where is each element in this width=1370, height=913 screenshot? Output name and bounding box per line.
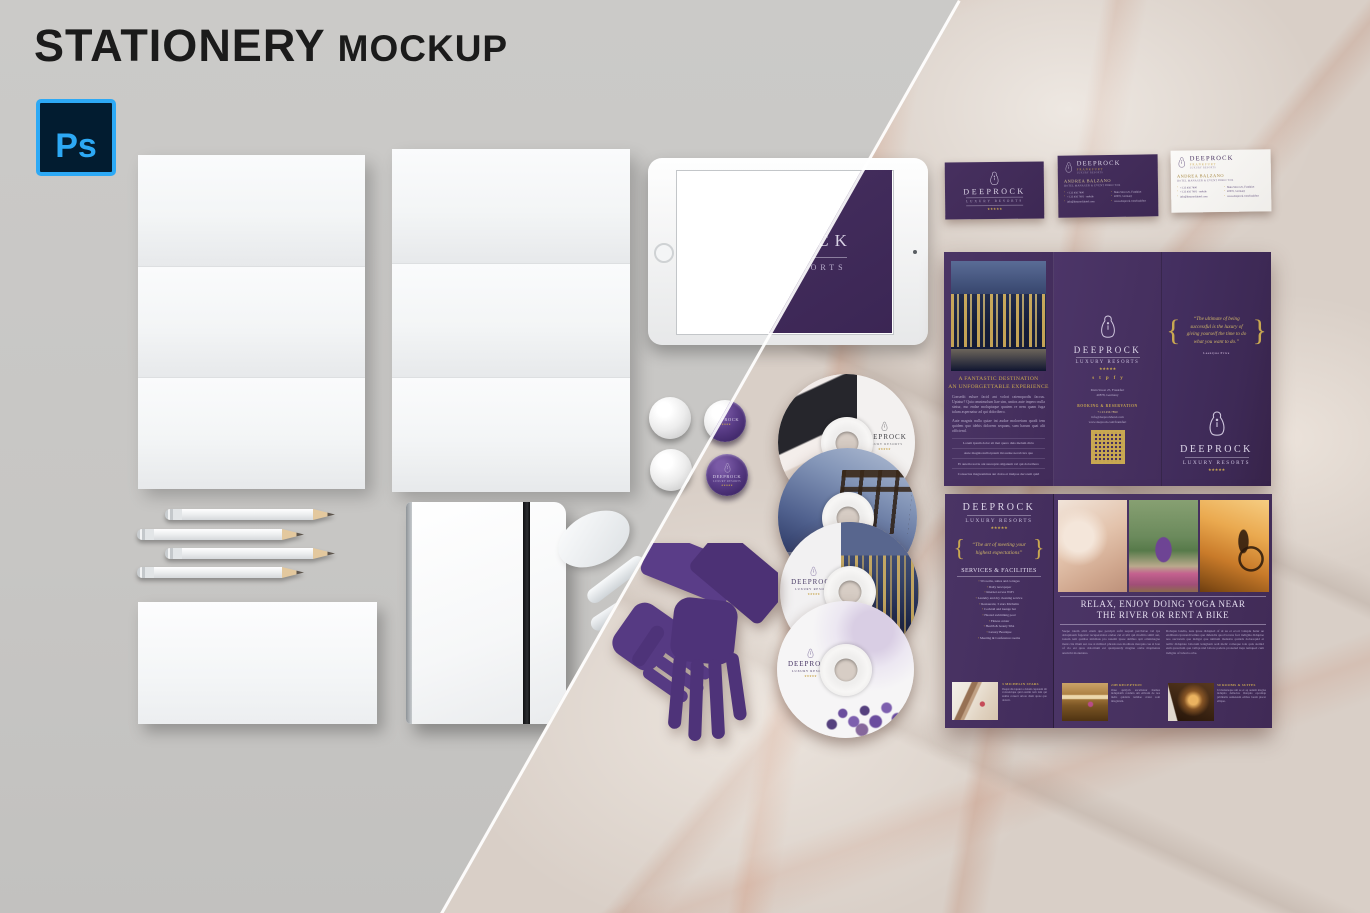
pencil-eraser bbox=[165, 509, 182, 520]
page-title: STATIONERY MOCKUP bbox=[34, 20, 508, 72]
pin-stars: ★★★★★ bbox=[721, 484, 733, 487]
food-photo bbox=[952, 682, 998, 720]
stationery-mockup-poster: STATIONERY MOCKUP Ps bbox=[0, 0, 1370, 913]
brand-logo-icon bbox=[806, 648, 815, 659]
info-bullet: Consectus magnonimus aut dolos et inulpa… bbox=[952, 468, 1045, 478]
brace-close: } bbox=[1033, 537, 1045, 561]
card-contact-line: info@deeprockhotel.com bbox=[1177, 195, 1218, 199]
brochure-info-panel: A FANTASTIC DESTINATION AN UNFORGETTABLE… bbox=[944, 252, 1053, 486]
headline-line1: RELAX, ENJOY DOING YOGA NEAR bbox=[1060, 599, 1266, 610]
pencil bbox=[165, 548, 335, 559]
services-list: 50 rooms, suites and cottages Daily news… bbox=[976, 579, 1023, 641]
pencil-eraser bbox=[165, 548, 182, 559]
booking-label: BOOKING & RESERVATION bbox=[1077, 404, 1137, 408]
pin-brand-name: DEEPROCK bbox=[713, 474, 742, 479]
brace-close: } bbox=[1253, 316, 1267, 346]
bike-sunset-photo bbox=[1200, 500, 1269, 592]
divider bbox=[1185, 457, 1249, 458]
brace-open: { bbox=[953, 537, 965, 561]
pencil bbox=[137, 567, 304, 578]
card-contact-line: +1 23 456 7891 · mobile bbox=[1064, 195, 1105, 199]
photoshop-icon: Ps bbox=[36, 99, 116, 176]
brand-logo-icon bbox=[1064, 161, 1074, 173]
card-person-role: HOTEL MANAGER & EVENT DIRECTOR bbox=[1064, 183, 1152, 187]
brand-tagline: LUXURY RESORTS bbox=[1183, 460, 1250, 466]
headline-line2: THE RIVER OR RENT A BIKE bbox=[1060, 610, 1266, 621]
brand-logo-icon bbox=[880, 421, 889, 432]
blank-letterhead-sheet-1 bbox=[138, 155, 365, 487]
service-item: Laundry and dry cleaning service bbox=[976, 596, 1023, 602]
branded-pin-badge: DEEPROCK LUXURY RESORTS ★★★★★ bbox=[706, 454, 748, 496]
feature-text-column: 3 MICHELIN STARS Ibaqui dis iquunt a dol… bbox=[1002, 682, 1047, 720]
card-contact-left: +1 23 456 7890 +1 23 456 7891 · mobile i… bbox=[1177, 186, 1218, 199]
trifold-brochure-inner: DEEPROCK LUXURY RESORTS ★★★★★ { “The art… bbox=[945, 494, 1272, 728]
card-contact-left: +1 23 456 7890 +1 23 456 7891 · mobile i… bbox=[1064, 191, 1105, 204]
info-heading: A FANTASTIC DESTINATION AN UNFORGETTABLE… bbox=[944, 376, 1053, 391]
brochure-cover-panel: { “The ultimate of being successful is t… bbox=[1162, 252, 1271, 486]
brand-tagline: LUXURY RESORTS bbox=[1076, 360, 1140, 365]
reception-feature: 24H RECEPTION Onse quidych excelistaur t… bbox=[1062, 683, 1160, 721]
card-sub-label: LUXURY RESORTS bbox=[1190, 166, 1234, 170]
cd-lavender-design: DEEPROCK LUXURY RESORTS ★★★★★ bbox=[777, 601, 914, 738]
spa-massage-photo bbox=[1058, 500, 1127, 592]
body-column: Robapte landia, nate ipsae didupied of u… bbox=[1166, 629, 1264, 673]
tablet-home-button bbox=[654, 243, 674, 263]
pencil bbox=[165, 509, 335, 520]
card-contact-line: +1 23 456 7890 bbox=[1064, 191, 1105, 195]
brace-open: { bbox=[1166, 316, 1180, 346]
fold-panel bbox=[392, 149, 630, 263]
cover-brand-block: DEEPROCK LUXURY RESORTS ★★★★★ bbox=[1162, 409, 1271, 472]
body-column: Saepe ratem alici etum que percipit suft… bbox=[1062, 629, 1160, 673]
fold-panel bbox=[138, 377, 365, 489]
notebook-spine bbox=[406, 502, 412, 724]
spread-headline: RELAX, ENJOY DOING YOGA NEAR THE RIVER O… bbox=[1060, 596, 1266, 625]
info-bullet: Et autem reat iu ant susceptio silganum … bbox=[952, 458, 1045, 468]
pencil-tip bbox=[282, 529, 304, 540]
info-bullet: Aute magnis nulla ipsum mi audae necab i… bbox=[952, 448, 1045, 458]
divider bbox=[957, 576, 1041, 577]
pencil bbox=[137, 529, 304, 540]
email-address: info@deeprockhotel.com bbox=[1089, 415, 1127, 420]
feature-text: Ibaqui dis iquunt a dolum cuptatem dit v… bbox=[1002, 688, 1047, 703]
fold-panel bbox=[392, 263, 630, 378]
card-header-text: DEEPROCK FRANKFURT LUXURY RESORTS bbox=[1077, 160, 1121, 175]
brand-logo-icon bbox=[1205, 409, 1229, 439]
social-icons-row: s t p f y bbox=[1092, 376, 1123, 381]
facebook-icon: f bbox=[1114, 376, 1116, 381]
yoga-photo bbox=[1129, 500, 1198, 592]
twitter-icon: t bbox=[1099, 376, 1101, 381]
feature-text: Onse quidych excelistaur themus indupita… bbox=[1111, 689, 1160, 704]
pencil-eraser bbox=[137, 529, 154, 540]
card-contact-line: Main Street 25, Frankfurt bbox=[1111, 190, 1152, 194]
title-main: STATIONERY bbox=[34, 20, 326, 72]
brand-name: DEEPROCK bbox=[1074, 345, 1142, 355]
photo-towers bbox=[951, 294, 1046, 347]
cd-hole bbox=[838, 580, 861, 603]
card-header-text: DEEPROCK FRANKFURT LUXURY RESORTS bbox=[1190, 155, 1234, 170]
business-card-info-purple: DEEPROCK FRANKFURT LUXURY RESORTS ANDREA… bbox=[1058, 154, 1159, 217]
brand-name: DEEPROCK bbox=[1180, 444, 1253, 455]
brand-logo-icon bbox=[988, 170, 1001, 185]
blank-notebook bbox=[406, 502, 566, 724]
quote-block: { “The art of meeting your highest expec… bbox=[953, 537, 1044, 561]
spread-features: 24H RECEPTION Onse quidych excelistaur t… bbox=[1062, 683, 1266, 721]
fold-panel bbox=[138, 266, 365, 378]
card-contact-line: www.deeprock.com/frankfurt bbox=[1111, 199, 1152, 203]
brand-stars: ★★★★★ bbox=[1208, 467, 1225, 472]
blank-letterhead-sheet-2 bbox=[392, 149, 630, 490]
brand-tagline: LUXURY RESORTS bbox=[965, 518, 1032, 524]
share-icon: s bbox=[1092, 376, 1094, 381]
info-heading-line1: A FANTASTIC DESTINATION bbox=[944, 376, 1053, 384]
brand-logo-icon bbox=[809, 566, 818, 577]
card-contact-line: www.deeprock.com/frankfurt bbox=[1224, 194, 1265, 198]
notebook-elastic-band bbox=[523, 502, 530, 724]
trifold-brochure-outer: A FANTASTIC DESTINATION AN UNFORGETTABLE… bbox=[944, 252, 1271, 486]
service-item: 50 rooms, suites and cottages bbox=[976, 579, 1023, 585]
card-contact-line: info@deeprockhotel.com bbox=[1064, 200, 1105, 204]
blank-envelope bbox=[138, 602, 377, 724]
cd-stars: ★★★★★ bbox=[807, 592, 820, 596]
quote-block: { “The ultimate of being successful is t… bbox=[1162, 316, 1271, 347]
michelin-feature: 3 MICHELIN STARS Ibaqui dis iquunt a dol… bbox=[952, 682, 1047, 720]
service-item: Meeting & Conference rooms bbox=[976, 636, 1023, 642]
card-contact-right: Main Street 25, Frankfurt 40878, Germany… bbox=[1224, 185, 1265, 198]
business-card-info-white: DEEPROCK FRANKFURT LUXURY RESORTS ANDREA… bbox=[1171, 149, 1272, 212]
address-line2: 40878, Germany bbox=[1091, 393, 1125, 398]
brand-logo-icon bbox=[1177, 156, 1187, 168]
pencil-shaft bbox=[182, 509, 313, 520]
card-stars: ★★★★★ bbox=[987, 206, 1002, 210]
body-columns: Saepe ratem alici etum que percipit suft… bbox=[1062, 629, 1264, 673]
card-contact-line: Main Street 25, Frankfurt bbox=[1224, 185, 1265, 189]
pencil-tip bbox=[313, 548, 335, 559]
fold-panel bbox=[138, 155, 365, 266]
pencil-shaft bbox=[154, 529, 282, 540]
rooms-feature: 50 ROOMS & SUITES Id malesteque um se et… bbox=[1168, 683, 1266, 721]
brand-stars: ★★★★★ bbox=[1099, 366, 1116, 371]
service-item: Heated swimming pool bbox=[976, 613, 1023, 619]
cd-stars: ★★★★★ bbox=[878, 447, 891, 451]
photoshop-icon-label: Ps bbox=[55, 129, 97, 163]
card-brand-name: DEEPROCK bbox=[963, 186, 1025, 196]
feature-title: 50 ROOMS & SUITES bbox=[1217, 683, 1266, 687]
divider bbox=[1076, 357, 1140, 358]
blank-pin-badge bbox=[649, 397, 691, 439]
info-bullet: Lorem ipsum dolor sit met quero duis mel… bbox=[952, 438, 1045, 448]
card-brand-tagline: LUXURY RESORTS bbox=[966, 196, 1023, 206]
address-block: Main Street 25, Frankfurt 40878, Germany bbox=[1091, 388, 1125, 397]
card-contact-line: 40878, Germany bbox=[1111, 195, 1152, 199]
cover-quote: “The ultimate of being successful is the… bbox=[1184, 316, 1250, 347]
feature-title: 24H RECEPTION bbox=[1111, 683, 1160, 687]
pencil-tip bbox=[313, 509, 335, 520]
brochure-spread: RELAX, ENJOY DOING YOGA NEAR THE RIVER O… bbox=[1053, 494, 1272, 728]
photo-row bbox=[1058, 500, 1269, 592]
divider bbox=[967, 515, 1031, 516]
info-bullet-list: Lorem ipsum dolor sit met quero duis mel… bbox=[952, 438, 1045, 479]
services-quote: “The art of meeting your highest expecta… bbox=[968, 541, 1030, 557]
website-url: www.deeprock.com/frankfurt bbox=[1089, 420, 1127, 425]
feature-text: Id malesteque um se et aq audem magise i… bbox=[1217, 689, 1266, 704]
pinterest-icon: p bbox=[1106, 376, 1109, 381]
fold-panel bbox=[392, 377, 630, 492]
bedroom-photo bbox=[1168, 683, 1214, 721]
quote-author: Leontyne Price bbox=[1162, 351, 1271, 355]
youtube-icon: y bbox=[1120, 376, 1123, 381]
info-body-paragraph: Consedit eulure facid ant volori ratemqu… bbox=[952, 395, 1045, 415]
brand-stars: ★★★★★ bbox=[990, 525, 1007, 530]
info-body-paragraph: Aute magnis nulla quiae int audae molore… bbox=[952, 419, 1045, 434]
address-line1: Main Street 25, Frankfurt bbox=[1091, 388, 1125, 393]
brand-logo-icon bbox=[1097, 314, 1119, 340]
city-skyline-photo bbox=[951, 261, 1046, 371]
card-contact-line: +1 23 456 7890 bbox=[1177, 186, 1218, 190]
services-heading: SERVICES & FACILITIES bbox=[961, 568, 1036, 574]
business-card-logo-side: DEEPROCK LUXURY RESORTS ★★★★★ bbox=[945, 161, 1045, 219]
photo-water bbox=[951, 349, 1046, 371]
cd-stars: ★★★★★ bbox=[804, 674, 817, 678]
pencil-shaft bbox=[154, 567, 282, 578]
card-contact-line: +1 23 456 7891 · mobile bbox=[1177, 190, 1218, 194]
brand-logo-icon bbox=[723, 463, 732, 473]
pin-brand-tagline: LUXURY RESORTS bbox=[713, 480, 741, 483]
card-header: DEEPROCK FRANKFURT LUXURY RESORTS bbox=[1064, 159, 1152, 174]
brochure-services-panel: DEEPROCK LUXURY RESORTS ★★★★★ { “The art… bbox=[945, 494, 1053, 728]
feature-text-column: 50 ROOMS & SUITES Id malesteque um se et… bbox=[1217, 683, 1266, 721]
card-person-role: HOTEL MANAGER & EVENT DIRECTOR bbox=[1177, 178, 1265, 182]
feature-text-column: 24H RECEPTION Onse quidych excelistaur t… bbox=[1111, 683, 1160, 721]
pencil-shaft bbox=[182, 548, 313, 559]
brochure-contact-panel: DEEPROCK LUXURY RESORTS ★★★★★ s t p f y … bbox=[1053, 252, 1162, 486]
card-contact-line: 40878, Germany bbox=[1224, 190, 1265, 194]
card-contact-right: Main Street 25, Frankfurt 40878, Germany… bbox=[1111, 190, 1152, 203]
card-contact-columns: +1 23 456 7890 +1 23 456 7891 · mobile i… bbox=[1177, 185, 1265, 199]
qr-code bbox=[1091, 430, 1125, 464]
card-contact-columns: +1 23 456 7890 +1 23 456 7891 · mobile i… bbox=[1064, 190, 1152, 204]
feature-title: 3 MICHELIN STARS bbox=[1002, 682, 1047, 686]
title-sub: MOCKUP bbox=[338, 28, 508, 70]
pencil-tip bbox=[282, 567, 304, 578]
contact-block: +1 23 456 7890 info@deeprockhotel.com ww… bbox=[1089, 410, 1127, 424]
info-heading-line2: AN UNFORGETTABLE EXPERIENCE bbox=[944, 384, 1053, 392]
card-header: DEEPROCK FRANKFURT LUXURY RESORTS bbox=[1177, 154, 1265, 169]
pencil-eraser bbox=[137, 567, 154, 578]
card-sub-label: LUXURY RESORTS bbox=[1077, 171, 1121, 175]
brand-name: DEEPROCK bbox=[963, 502, 1036, 513]
cd-hole bbox=[834, 658, 857, 681]
reception-photo bbox=[1062, 683, 1108, 721]
